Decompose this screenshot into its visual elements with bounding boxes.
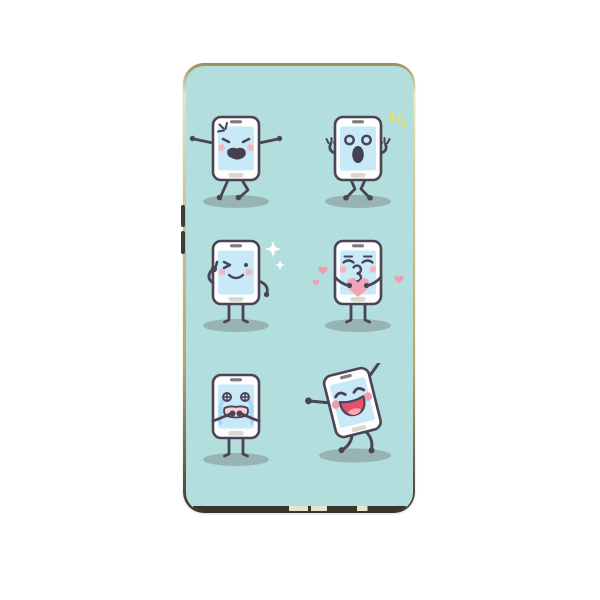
leg — [240, 180, 248, 197]
flash-sparkle-icon — [388, 110, 409, 129]
home-button — [228, 431, 243, 436]
ground-shadow — [325, 319, 391, 332]
hand — [346, 282, 351, 287]
tilted-phone-group — [298, 363, 406, 463]
hand — [363, 282, 368, 287]
cheek — [369, 266, 376, 273]
case-back-panel — [186, 66, 413, 511]
oval-open-mouth — [352, 146, 364, 163]
product-photo — [0, 0, 600, 600]
leg — [221, 180, 228, 196]
character-dancing-phone — [291, 363, 413, 463]
leg — [365, 430, 372, 448]
fist-over-mouth — [229, 410, 235, 416]
thumb — [216, 262, 217, 266]
arm — [194, 139, 213, 143]
volume-button — [181, 205, 185, 227]
bottom-port-cutouts — [193, 506, 406, 511]
cheek — [339, 266, 346, 273]
home-button — [350, 173, 365, 178]
cheek — [247, 144, 254, 151]
cheek — [218, 268, 225, 275]
arm — [310, 396, 328, 406]
diamond-sparkle-icon — [275, 260, 285, 270]
speaker-slot — [352, 120, 364, 123]
cheek — [245, 268, 252, 275]
hand — [276, 135, 281, 140]
speaker-slot — [230, 378, 242, 381]
foot — [343, 195, 349, 201]
fist-over-mouth — [236, 410, 242, 416]
ground-shadow — [319, 448, 391, 462]
leg — [361, 180, 369, 197]
speaker-slot — [352, 244, 364, 247]
home-button — [228, 173, 243, 178]
foot — [216, 194, 222, 200]
home-button — [350, 297, 365, 302]
home-button — [228, 297, 243, 302]
foot — [235, 194, 241, 200]
character-winking-phone — [186, 233, 298, 333]
fist — [304, 396, 312, 404]
speaker-slot — [230, 244, 242, 247]
leg — [347, 180, 355, 197]
diamond-sparkle-icon — [265, 241, 281, 257]
ground-shadow — [325, 195, 391, 208]
arm — [259, 139, 278, 143]
hand — [263, 291, 268, 296]
character-crying-phone — [186, 367, 298, 467]
dot-eye — [244, 263, 248, 267]
foot — [367, 195, 373, 201]
cheek — [218, 144, 225, 151]
phone-case-frame — [183, 63, 415, 513]
character-angry-phone — [186, 109, 298, 209]
ground-shadow — [203, 453, 269, 466]
ground-shadow — [203, 319, 269, 332]
character-surprised-phone — [296, 109, 413, 209]
character-kissing-phone — [296, 233, 413, 333]
volume-button — [181, 231, 185, 254]
hand — [189, 135, 194, 140]
speaker-slot — [230, 120, 242, 123]
